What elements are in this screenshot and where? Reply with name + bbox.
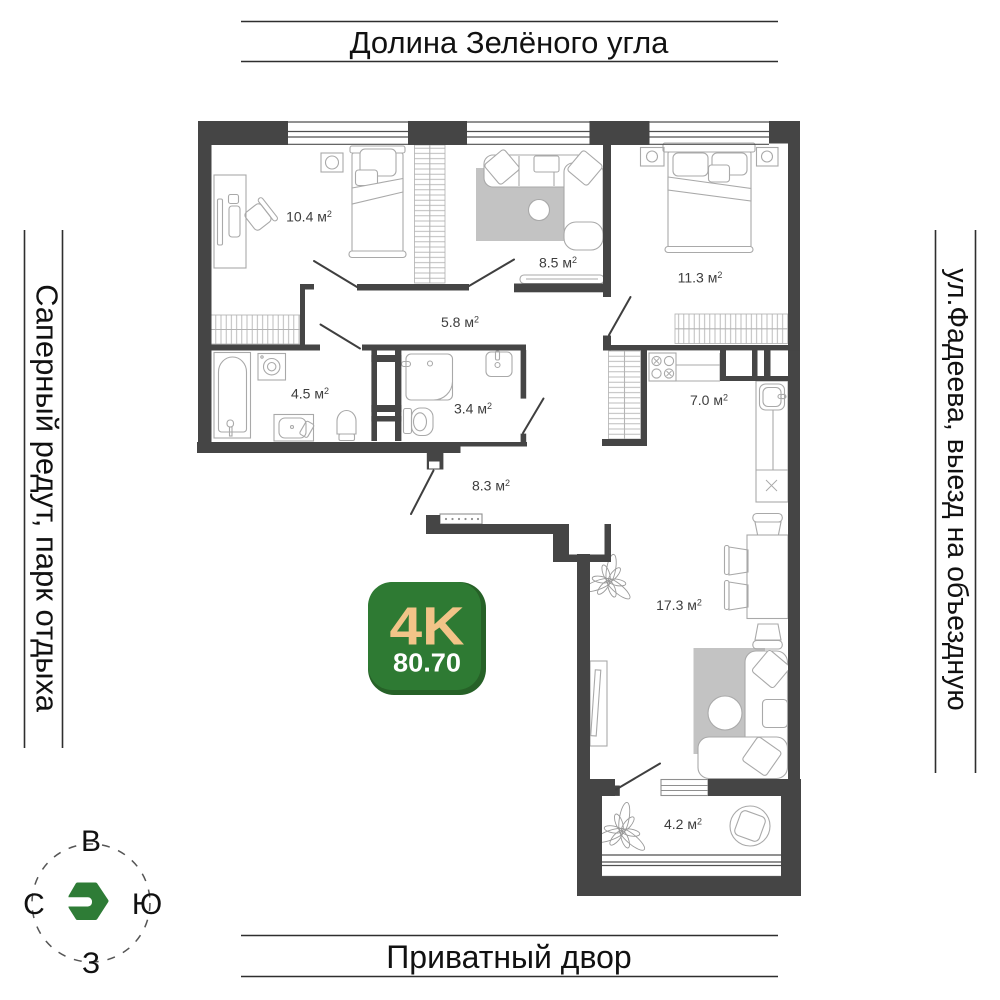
- svg-text:В: В: [81, 825, 101, 858]
- svg-text:80.70: 80.70: [393, 650, 461, 678]
- svg-text:ул.Фадеева, выезд на объездную: ул.Фадеева, выезд на объездную: [941, 268, 973, 711]
- svg-text:11.3 м2: 11.3 м2: [678, 270, 723, 286]
- svg-text:4K: 4K: [390, 597, 465, 657]
- svg-text:7.0 м2: 7.0 м2: [690, 392, 728, 408]
- svg-text:5.8 м2: 5.8 м2: [441, 314, 479, 330]
- svg-text:Саперный редут, парк отдыха: Саперный редут, парк отдыха: [30, 284, 65, 713]
- svg-text:4.5 м2: 4.5 м2: [291, 386, 329, 402]
- svg-text:С: С: [23, 888, 45, 921]
- svg-text:4.2 м2: 4.2 м2: [664, 816, 702, 832]
- svg-text:З: З: [82, 947, 100, 980]
- svg-text:10.4 м2: 10.4 м2: [286, 209, 332, 225]
- svg-text:3.4 м2: 3.4 м2: [454, 401, 492, 417]
- svg-text:8.3 м2: 8.3 м2: [472, 478, 510, 494]
- svg-text:17.3 м2: 17.3 м2: [656, 597, 702, 613]
- svg-text:Приватный двор: Приватный двор: [386, 939, 631, 975]
- svg-text:Ю: Ю: [132, 888, 162, 921]
- svg-text:8.5 м2: 8.5 м2: [539, 255, 577, 271]
- svg-text:Долина Зелёного угла: Долина Зелёного угла: [350, 25, 670, 60]
